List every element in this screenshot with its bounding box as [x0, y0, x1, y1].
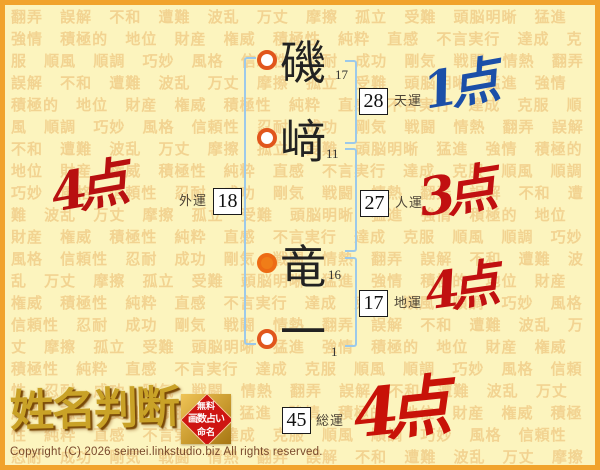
seimei-result-image: 翻弄 誤解 不和 遭難 波乱 万丈 摩擦 孤立 受難 頭脳明晰 猛進 強情 積極…	[0, 0, 600, 470]
char-marker-circle-icon	[257, 50, 277, 70]
stroke-count-4: 1	[331, 344, 338, 360]
bracket-outer-luck	[244, 57, 256, 345]
heaven-luck-points: 1点	[419, 55, 495, 116]
outer-luck-points: 4点	[47, 157, 123, 220]
char-marker-filled-circle-icon	[257, 253, 277, 273]
person-luck-value-box: 27	[360, 190, 389, 217]
site-logo-title: 姓名判断	[9, 386, 178, 434]
stroke-count-1: 17	[335, 67, 348, 83]
outer-luck-value-box: 18	[213, 188, 242, 215]
bracket-earth-luck	[345, 257, 357, 347]
char-marker-circle-icon	[257, 329, 277, 349]
badge-text-line: 画数占い	[181, 415, 231, 425]
char-marker-circle-icon	[257, 128, 277, 148]
copyright-text: Copyright (C) 2026 seimei.linkstudio.biz…	[10, 446, 323, 458]
name-char-4: 一	[276, 310, 330, 356]
person-luck-points: 3点	[415, 163, 490, 225]
total-luck-value-box: 45	[282, 407, 311, 434]
earth-luck-points: 4点	[422, 259, 493, 318]
stroke-count-2: 11	[326, 146, 339, 162]
total-luck-label: 総運	[316, 408, 344, 433]
stroke-count-3: 16	[328, 267, 341, 283]
earth-luck-value-box: 17	[359, 290, 388, 317]
badge-text-line: 命名	[181, 428, 231, 437]
name-char-1: 磯	[276, 41, 330, 87]
name-char-2: 﨑	[276, 120, 330, 166]
name-char-3: 竜	[276, 245, 330, 291]
heaven-luck-label: 天運	[394, 88, 422, 113]
outer-luck-label: 外運	[179, 188, 207, 213]
badge-text-line: 無料	[181, 402, 231, 411]
total-luck-points: 4点	[350, 373, 440, 447]
free-naming-badge: 無料 画数占い 命名	[181, 394, 231, 444]
earth-luck-label: 地運	[394, 290, 422, 315]
bracket-person-luck	[345, 148, 357, 252]
heaven-luck-value-box: 28	[359, 88, 388, 115]
